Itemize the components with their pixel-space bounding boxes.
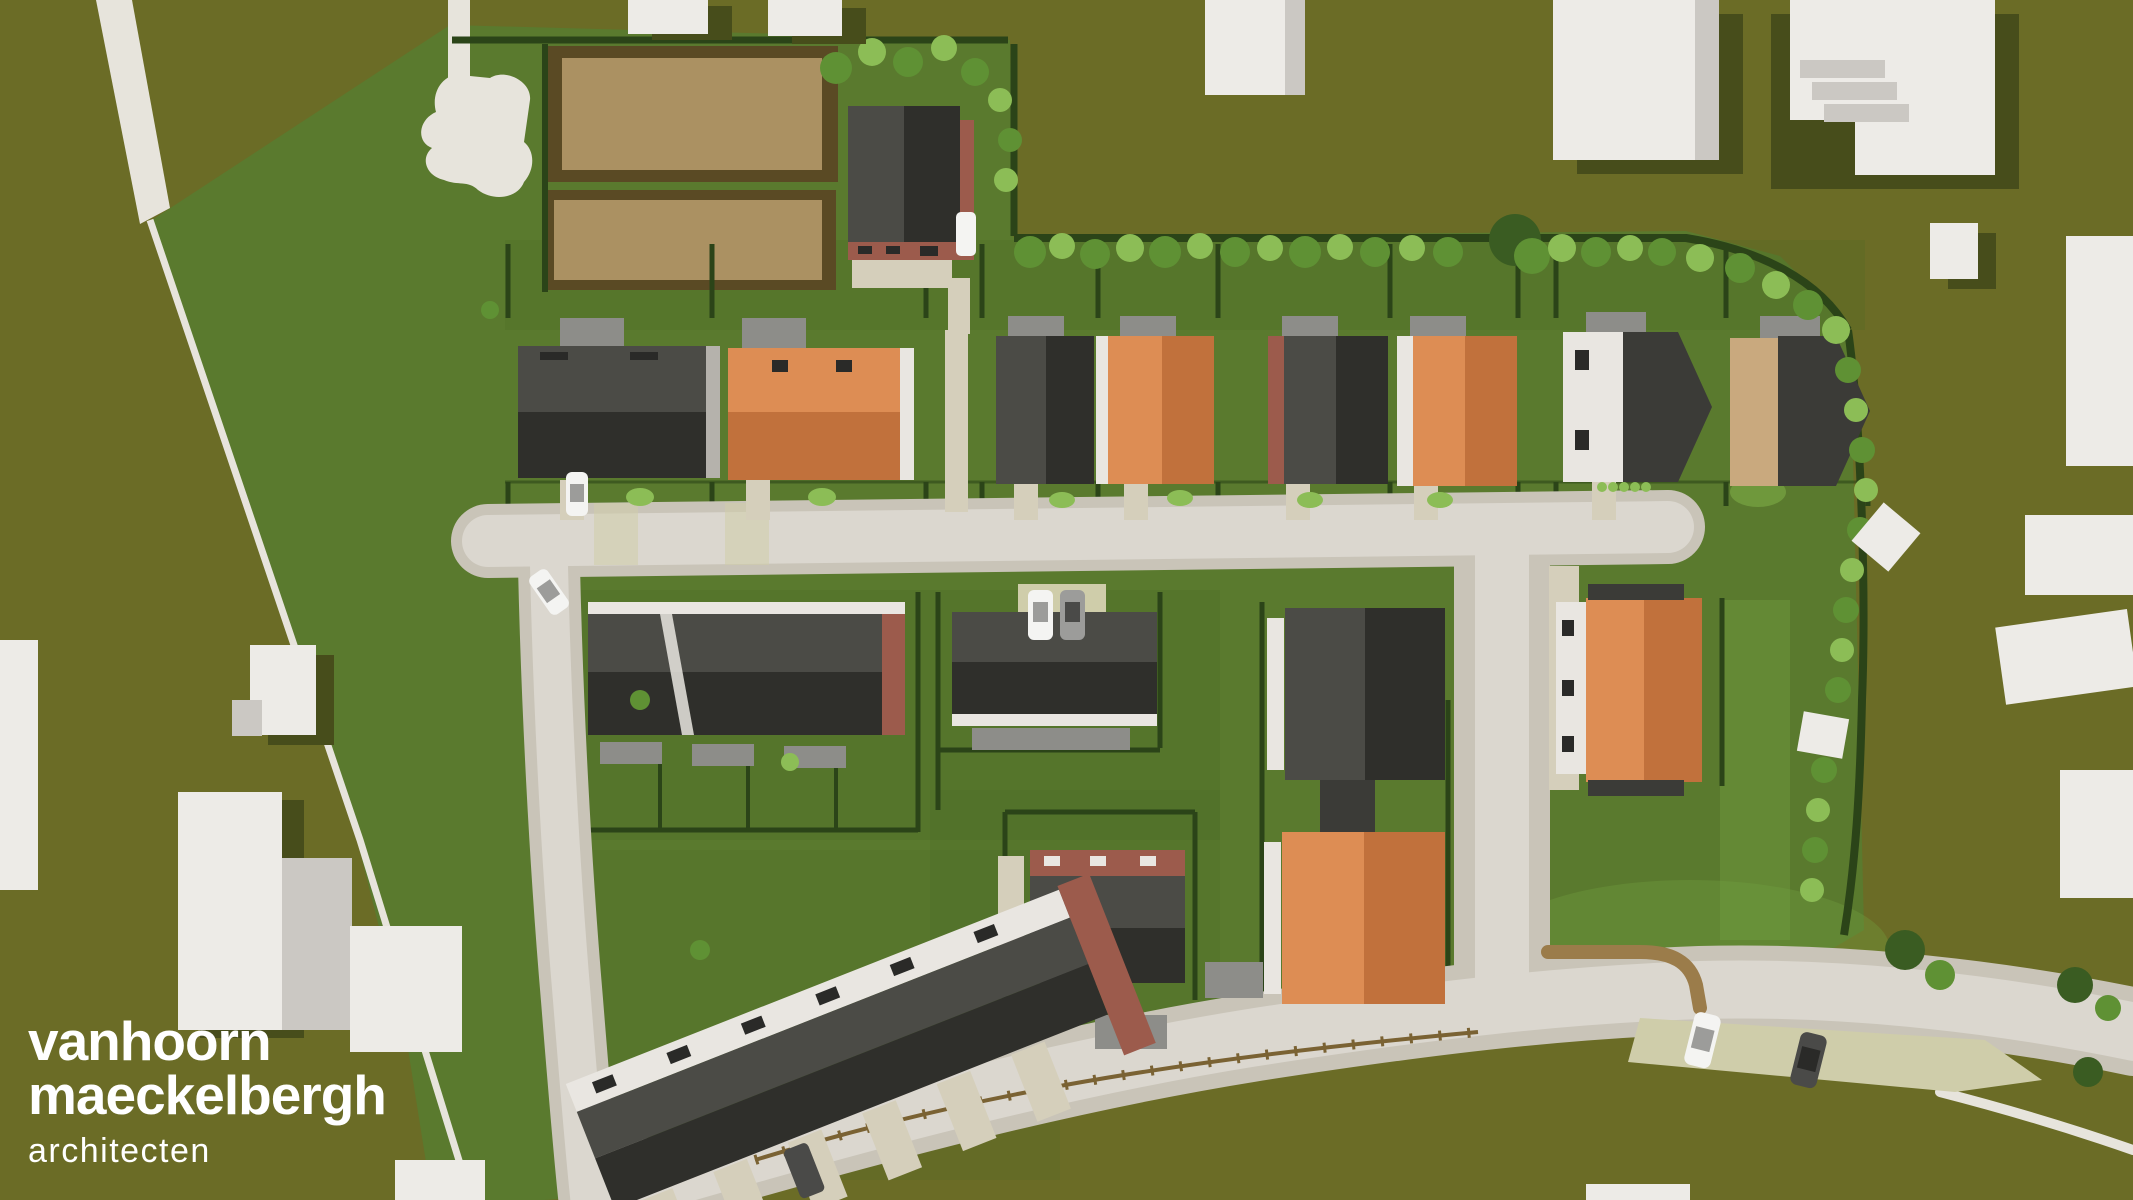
- paved-crossing: [594, 503, 638, 565]
- roof: [1465, 336, 1517, 486]
- house-6-orange-white: [1397, 336, 1517, 486]
- logo-line-3: architecten: [28, 1134, 386, 1168]
- context-step: [1812, 82, 1897, 100]
- car-roof: [570, 484, 584, 502]
- context-side-face: [282, 858, 352, 1030]
- car-body: [956, 212, 976, 256]
- window: [1562, 736, 1574, 752]
- brick-wall: [1730, 338, 1778, 486]
- car-driveway-house-1: [566, 472, 588, 516]
- roof: [1586, 598, 1644, 782]
- gable-wall: [900, 348, 914, 480]
- car-roof: [1033, 602, 1048, 622]
- bush: [808, 488, 836, 506]
- logo-line-2: maeckelbergh: [28, 1068, 386, 1122]
- tree: [1220, 237, 1250, 267]
- context-building: [768, 0, 842, 36]
- house-2-orange: [728, 348, 914, 480]
- bush: [1608, 482, 1618, 492]
- window: [1562, 680, 1574, 696]
- roof: [1282, 832, 1364, 1004]
- tree: [1548, 234, 1576, 262]
- garage: [972, 728, 1130, 750]
- tree: [820, 52, 852, 84]
- roof-window: [836, 360, 852, 372]
- bush: [1167, 490, 1193, 506]
- apartment-east-orange: [1556, 584, 1702, 796]
- car-roof: [1065, 602, 1080, 622]
- roof: [904, 106, 960, 242]
- brick-house-driveway: [852, 260, 952, 288]
- row-building-east: [952, 612, 1157, 726]
- roof: [1413, 336, 1465, 486]
- tree: [2095, 995, 2121, 1021]
- walkway: [945, 330, 968, 512]
- context-building: [1797, 711, 1849, 758]
- window: [1575, 350, 1589, 370]
- tree: [1806, 798, 1830, 822]
- window: [1140, 856, 1156, 866]
- roof: [728, 412, 900, 480]
- roof-window: [540, 352, 568, 360]
- window: [858, 246, 872, 254]
- tree: [630, 690, 650, 710]
- window: [1575, 430, 1589, 450]
- tree: [998, 128, 1022, 152]
- tree: [994, 168, 1018, 192]
- architect-logo: vanhoorn maeckelbergh architecten: [28, 1014, 386, 1168]
- tree: [1849, 437, 1875, 463]
- brick-wall: [1268, 336, 1284, 484]
- aerial-render: vanhoorn maeckelbergh architecten: [0, 0, 2133, 1200]
- brick-house-north: [848, 106, 974, 260]
- roof: [1284, 336, 1336, 484]
- tree: [1835, 357, 1861, 383]
- bush: [626, 488, 654, 506]
- dirt-fields: [542, 46, 838, 290]
- tree: [1833, 597, 1859, 623]
- tree: [931, 35, 957, 61]
- tree: [1762, 271, 1790, 299]
- tree: [1187, 233, 1213, 259]
- tree: [1014, 236, 1046, 268]
- context-building: [1553, 0, 1719, 160]
- tree: [1802, 837, 1828, 863]
- wall: [1563, 332, 1623, 482]
- tree: [1830, 638, 1854, 662]
- row-building-west: [588, 602, 905, 735]
- window: [1562, 620, 1574, 636]
- facade: [588, 602, 905, 614]
- facade: [1264, 842, 1281, 994]
- roof: [1162, 336, 1214, 484]
- garage: [692, 744, 754, 766]
- tree: [1822, 316, 1850, 344]
- tree: [2057, 967, 2093, 1003]
- tree: [1399, 235, 1425, 261]
- tree: [1725, 253, 1755, 283]
- tree: [1149, 236, 1181, 268]
- tree: [1793, 290, 1823, 320]
- roof: [1285, 608, 1365, 780]
- roof: [952, 662, 1157, 714]
- bush: [1597, 482, 1607, 492]
- bush: [1641, 482, 1651, 492]
- tree: [1686, 244, 1714, 272]
- context-step: [1824, 104, 1909, 122]
- roof: [728, 348, 900, 412]
- window: [886, 246, 900, 254]
- roof: [518, 412, 706, 478]
- context-block: [1797, 711, 1849, 758]
- roof-window: [630, 352, 658, 360]
- tree: [1514, 238, 1550, 274]
- tree: [1825, 677, 1851, 703]
- bush: [1049, 492, 1075, 508]
- roof: [588, 614, 905, 672]
- tree: [1648, 238, 1676, 266]
- facade: [1267, 618, 1284, 770]
- context-step: [232, 700, 262, 736]
- roof: [952, 612, 1157, 662]
- context-building: [2060, 770, 2133, 898]
- tree: [893, 47, 923, 77]
- brick-gable: [882, 614, 905, 735]
- garage: [742, 318, 806, 348]
- tree: [1080, 239, 1110, 269]
- roof: [1364, 832, 1445, 1004]
- roof: [1365, 608, 1445, 780]
- tree: [781, 753, 799, 771]
- tree: [1116, 234, 1144, 262]
- house-5-dark-brick: [1268, 336, 1388, 484]
- roof: [996, 336, 1046, 484]
- roof: [1108, 336, 1162, 484]
- driveway: [1124, 480, 1148, 520]
- window: [1044, 856, 1060, 866]
- house-1-dark: [518, 346, 720, 478]
- context-building: [2066, 236, 2133, 466]
- tree: [1360, 237, 1390, 267]
- tree: [961, 58, 989, 86]
- canopy: [1588, 584, 1684, 600]
- garage: [600, 742, 662, 764]
- context-building: [1586, 1184, 1690, 1200]
- walkway: [948, 278, 970, 334]
- context-building: [0, 640, 38, 890]
- tree: [1854, 478, 1878, 502]
- tree: [1840, 558, 1864, 582]
- garage: [1205, 962, 1263, 998]
- tree: [1885, 930, 1925, 970]
- tree: [481, 301, 499, 319]
- context-building: [2025, 515, 2133, 595]
- roof: [1336, 336, 1388, 484]
- house-4-orange: [1096, 336, 1214, 484]
- facade: [952, 714, 1157, 726]
- tree: [988, 88, 1012, 112]
- tree: [1327, 234, 1353, 260]
- context-side-face: [1695, 0, 1719, 160]
- tree: [1617, 235, 1643, 261]
- tree: [1433, 237, 1463, 267]
- tree: [690, 940, 710, 960]
- van-brick-house: [956, 212, 976, 256]
- tree: [1800, 878, 1824, 902]
- gable-wall: [1096, 336, 1108, 484]
- lawn-patch: [1720, 600, 1790, 940]
- link-block: [1320, 780, 1375, 832]
- context-building: [1930, 223, 1978, 279]
- garage: [560, 318, 624, 348]
- canopy: [1588, 780, 1684, 796]
- context-step: [1800, 60, 1885, 78]
- tree: [2073, 1057, 2103, 1087]
- context-building: [395, 1160, 485, 1200]
- roof: [848, 106, 904, 242]
- apartment-south-orange: [1264, 832, 1445, 1004]
- door: [920, 246, 938, 256]
- house-3-dark: [996, 336, 1094, 484]
- tree: [1289, 236, 1321, 268]
- tree: [1811, 757, 1837, 783]
- tree: [1581, 237, 1611, 267]
- context-building: [628, 0, 708, 34]
- bush: [1427, 492, 1453, 508]
- dirt-field: [554, 200, 822, 280]
- tree: [1257, 235, 1283, 261]
- driveway: [746, 480, 770, 520]
- context-building: [178, 792, 282, 1030]
- tree: [1844, 398, 1868, 422]
- roof: [1644, 598, 1702, 782]
- roof-window: [772, 360, 788, 372]
- driveway: [1014, 480, 1038, 520]
- roof: [1046, 336, 1094, 484]
- bush: [1297, 492, 1323, 508]
- context-side-face: [1285, 0, 1305, 95]
- tree: [1049, 233, 1075, 259]
- bush: [1630, 482, 1640, 492]
- window: [1090, 856, 1106, 866]
- tree: [1925, 960, 1955, 990]
- logo-line-1: vanhoorn: [28, 1014, 386, 1068]
- gable-wall: [706, 346, 720, 478]
- wall: [1397, 336, 1413, 486]
- dirt-field: [562, 58, 822, 170]
- bush: [1619, 482, 1629, 492]
